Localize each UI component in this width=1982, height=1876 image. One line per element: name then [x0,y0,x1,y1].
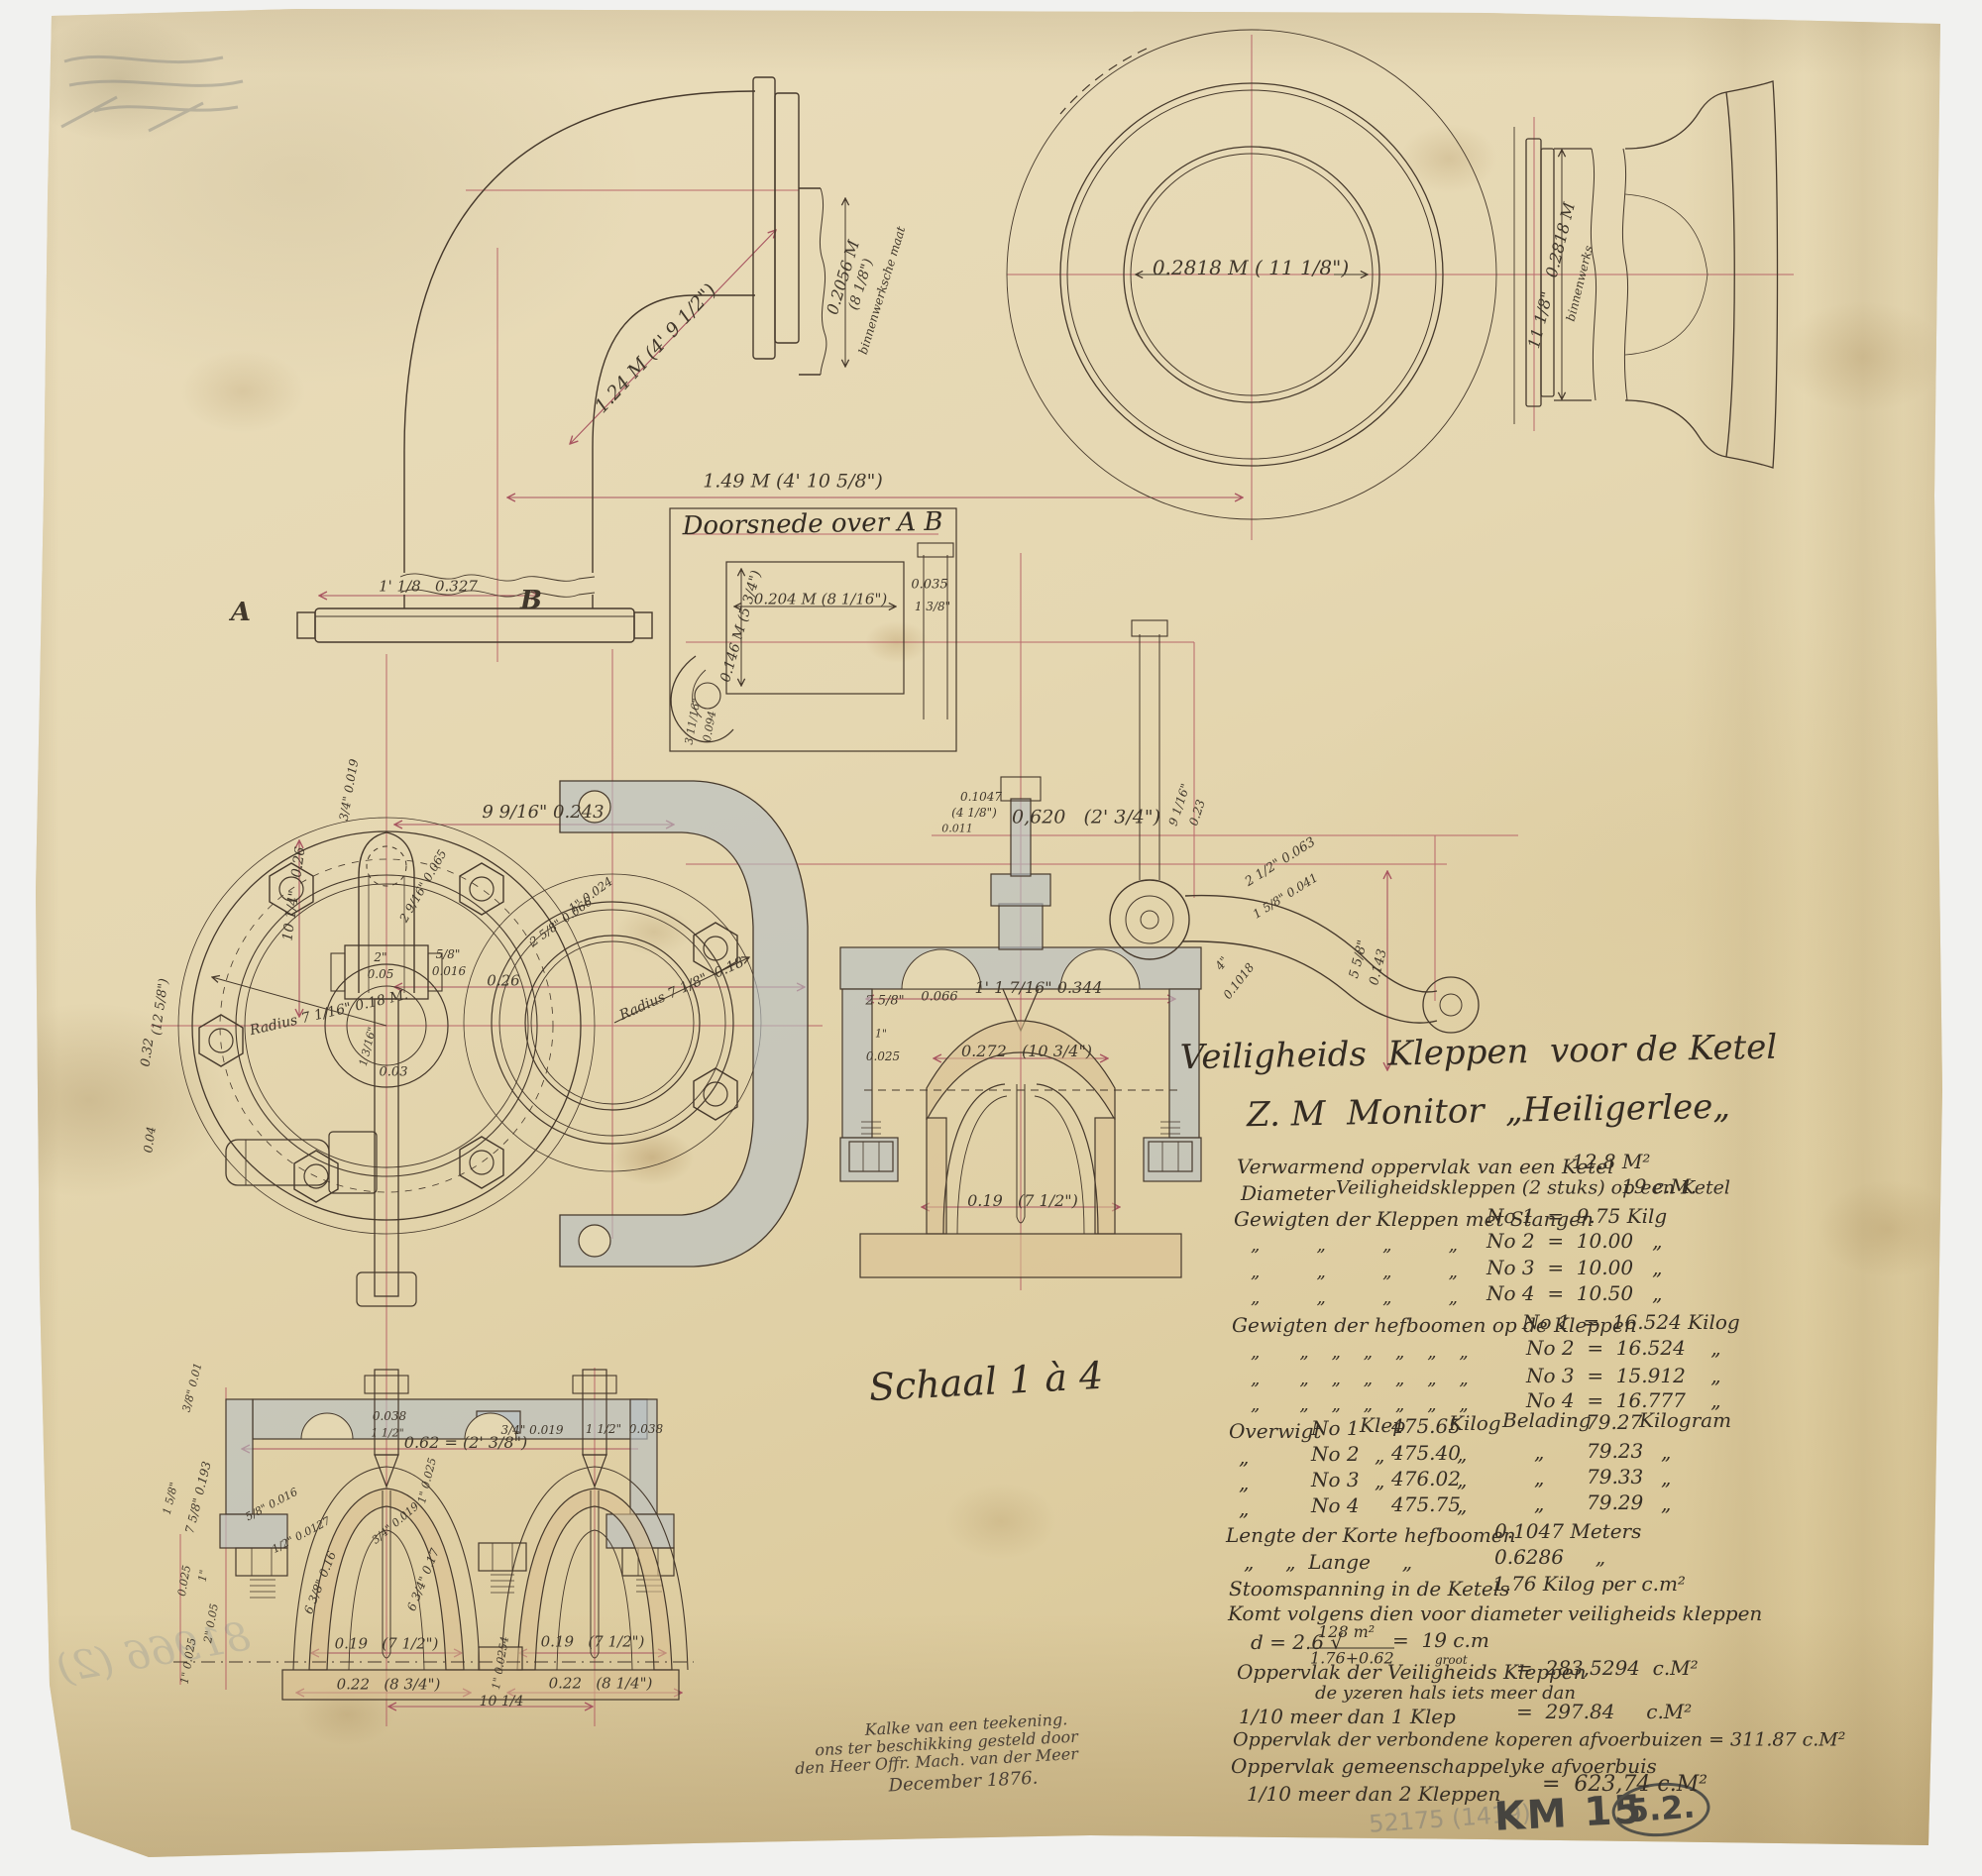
specification-text: 79.33 [1587,1467,1643,1487]
dimension-label: A [231,600,251,625]
dimension-label: 0.19 (7 1/2") [967,1193,1078,1209]
specification-text: Kilog [1449,1413,1501,1433]
specification-text: „ „ „ „ [1251,1264,1458,1281]
specification-text: No 2 [1311,1444,1360,1464]
specification-text: „ [1534,1493,1544,1513]
specification-text: Stoomspanning in de Ketels [1229,1579,1509,1599]
dimension-label: 0.32 [140,1038,157,1067]
specification-text: 475.75 [1391,1494,1461,1514]
specification-text: „ [1534,1442,1544,1462]
specification-text: „ „ „ „ [1251,1237,1458,1255]
dimension-label: 5/8" [436,948,461,960]
specification-text: 79.23 [1587,1441,1643,1461]
specification-text: „ [1375,1445,1384,1465]
specification-text: 476.02 [1391,1469,1461,1489]
specification-text: Verwarmend oppervlak van een Ketel [1237,1157,1613,1176]
specification-text: Kilogram [1639,1410,1731,1430]
specification-text: groot [1435,1654,1468,1666]
ship-title: Z. M Monitor „Heiligerlee„ [1247,1087,1731,1136]
specification-text: 1/10 meer dan 1 Klep [1239,1707,1456,1726]
dimension-label: 0.066 [921,991,957,1004]
dimension-label: 0.03 [380,1066,408,1079]
section-title: Doorsnede over A B [682,507,942,542]
dimension-label: 2 5/8" [865,995,904,1008]
specification-text: 79.27 [1586,1412,1642,1432]
specification-text: = 283,5294 c.M² [1516,1658,1699,1678]
specification-text: „ [1457,1470,1467,1490]
specification-text: 79.29 [1587,1492,1643,1512]
valve-seat-plan-view [464,781,808,1267]
dimension-label: 0,620 (2' 3/4") [1012,809,1160,828]
specification-text: No 3 [1311,1470,1360,1490]
dimension-label: 0.2818 M ( 11 1/8") [1153,258,1349,277]
dimension-label: B [520,588,542,613]
specification-text: 12.8 M² [1572,1152,1650,1171]
dimension-label: 0.038 [373,1410,406,1422]
specification-text: No 1 = 16.524 Kilog [1522,1312,1740,1332]
dimension-label: 0.204 M (8 1/16") [754,593,887,607]
specification-text: „ [1457,1444,1467,1464]
specification-text: 1/10 meer dan 2 Kleppen [1247,1784,1500,1804]
dimension-label: 1 1/2" 0.038 [586,1423,663,1435]
dimension-label: 0.011 [941,824,973,834]
dimension-label: 0.62 = (2' 3/8") [404,1435,527,1451]
specification-text: No 2 = 16.524 „ [1526,1338,1721,1358]
dimension-label: 0.025 [866,1050,900,1062]
dimension-label: 1.49 M (4' 10 5/8") [703,473,883,492]
specification-text: 0.6286 „ [1494,1547,1605,1567]
specification-text: „ „ „ „ „ „ „ [1251,1396,1469,1414]
specification-text: Oppervlak der verbondene koperen afvoerb… [1233,1731,1845,1750]
dimension-label: 0.04 [142,1126,158,1154]
dimension-label: 0.016 [432,965,466,977]
dimension-label: 2" [374,951,386,963]
scanned-technical-drawing: Veiligheids Kleppen voor de Ketel Z. M M… [0,0,1982,1876]
dimension-label: 1 1/2" [371,1428,403,1439]
dimension-label: 1' 1 7/16" 0.344 [974,980,1102,996]
specification-text: No 3 = 10.00 „ [1486,1258,1663,1277]
specification-text: „ „ „ „ [1251,1289,1458,1307]
dimension-label: 0.19 (7 1/2") [541,1635,645,1650]
specification-text: 128 m² [1318,1624,1375,1640]
dimension-label: 0.22 (8 3/4") [337,1678,441,1693]
specification-text: „ [1661,1442,1671,1462]
specification-text: = 297.84 c.M² [1516,1702,1692,1721]
dimension-label: 0.22 (8 1/4") [549,1677,653,1692]
dimension-label: 9 9/16" 0.243 [482,804,604,822]
specification-text: 19 c.M. [1621,1176,1697,1196]
specification-text: 475.40 [1391,1443,1461,1463]
elbow-pipe-view [297,77,826,642]
dimension-label: 1' 1/8 0.327 [379,580,478,595]
specification-text: „ [1375,1471,1384,1490]
specification-text: Overwigt [1229,1421,1321,1441]
dimension-label: 1" [197,1569,210,1583]
specification-text: No 4 = 16.777 „ [1526,1390,1721,1410]
specification-text: „ [1534,1468,1544,1488]
specification-text: „ [1239,1473,1249,1492]
specification-text: No 1 = 9.75 Kilg [1486,1206,1667,1226]
specification-text: „ [1239,1447,1249,1467]
dimension-label: 10 1/4 [480,1695,524,1709]
dimension-label: 0.19 (7 1/2") [335,1637,439,1652]
dimension-label: 0.272 (10 3/4") [961,1044,1092,1059]
dimension-label: 1 3/8" [915,601,950,612]
specification-text: No 1 [1311,1418,1360,1438]
specification-text: 0.1047 Meters [1494,1521,1641,1541]
specification-text: No 3 = 15.912 „ [1526,1366,1721,1385]
specification-text: Diameter [1241,1183,1335,1203]
dimension-label: 0.035 [911,579,947,592]
specification-text: No 4 = 10.50 „ [1486,1283,1663,1303]
specification-text: No 2 = 10.00 „ [1486,1231,1663,1251]
specification-text: „ „ „ „ „ „ „ [1251,1371,1469,1388]
specification-text: = 19 c.m [1392,1630,1489,1650]
specification-text: Belading [1502,1410,1592,1430]
specification-text: Lengte der Korte hefboomen [1226,1525,1516,1545]
pencil-scribbles [61,56,243,131]
specification-text: „ [1239,1498,1249,1518]
specification-text: „ [1661,1493,1671,1513]
specification-text: „ [1661,1468,1671,1488]
specification-text: Komt volgens dien voor diameter veilighe… [1228,1603,1762,1623]
dimension-label: 0.26 [487,974,519,989]
specification-text: „ „ Lange „ [1244,1552,1412,1572]
specification-text: „ [1457,1495,1467,1515]
dimension-label: 1" [875,1029,887,1040]
dimension-label: 0.05 [368,968,394,980]
specification-text: 1.76 Kilog per c.m² [1492,1574,1686,1594]
dimension-label: 0.1047 [960,791,1002,803]
dimension-label: (4 1/8") [951,807,997,819]
specification-text: „ „ „ „ „ „ „ [1251,1344,1469,1362]
dimension-label: 3/4" 0.019 [501,1424,564,1436]
specification-text: = 623,74 c.M² [1542,1774,1707,1796]
specification-text: No 4 [1311,1495,1360,1515]
